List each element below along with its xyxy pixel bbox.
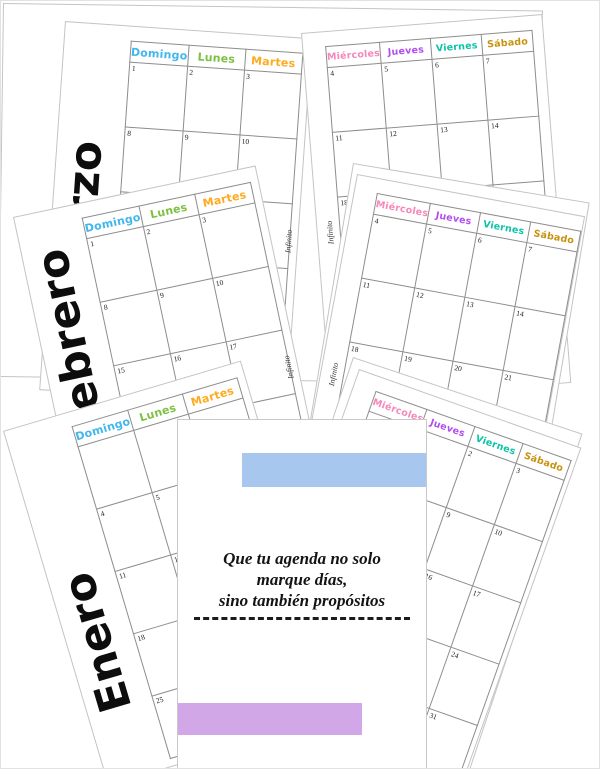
quote-line-1: Que tu agenda no solo [178,548,426,569]
day-cell: 4 [327,63,386,132]
cover-accent-bottom [178,703,362,735]
cover-quote: Que tu agenda no solo marque días, sino … [178,548,426,620]
day-cell: 1 [125,62,187,131]
cover-accent-top [242,453,426,487]
day-cell: 2 [183,66,244,135]
infinito-watermark: Infinito [327,362,340,387]
cover-page: Que tu agenda no solo marque días, sino … [177,419,427,769]
day-cell: 3 [199,203,268,278]
infinito-watermark: Infinito [283,229,294,253]
infinito-watermark: Infinito [325,220,336,244]
day-cell: 6 [432,55,488,124]
quote-line-2: marque días, [178,569,426,590]
day-cell: 14 [503,307,565,380]
day-cell: 3 [240,70,301,139]
day-cell: 10 [212,267,281,342]
quote-line-3: sino también propósitos [178,590,426,611]
calendar-collage: Marzo DomingoLunesMartes1238910151617222… [0,0,600,769]
day-cell: 7 [483,51,539,120]
day-cell: 14 [488,116,544,185]
day-cell: 7 [515,243,577,316]
day-cell: 5 [381,59,437,128]
dashed-divider [194,617,410,620]
